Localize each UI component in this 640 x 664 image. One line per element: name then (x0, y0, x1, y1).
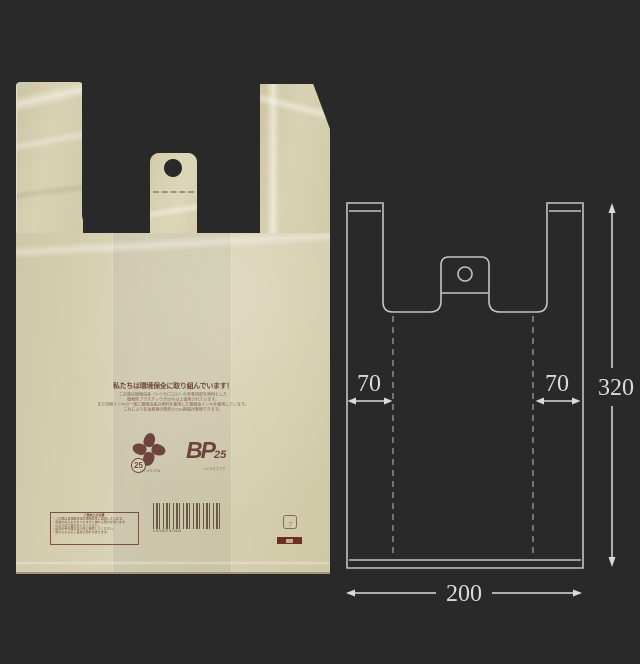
svg-text:70: 70 (545, 371, 569, 397)
dim-width-200: 200 (346, 581, 582, 607)
diagram-hang-hole (458, 267, 472, 281)
bp-mark-icon: BP25 (186, 437, 242, 467)
bag-right-handle (260, 84, 330, 234)
caution-line: ・頭からかぶると窒息の恐れがあります。 (52, 530, 136, 533)
eco-headline: 私たちは環境保全に取り組んでいます！ (53, 381, 293, 391)
bottom-fold-line (16, 562, 330, 564)
bp-caption: バイオマスプラ (190, 467, 238, 471)
eco-line: これにより石油資源の節約とCO₂削減が実現できます。 (73, 407, 273, 412)
bag-left-handle (16, 82, 83, 234)
highlight-streak (16, 126, 83, 153)
highlight-streak (260, 90, 330, 126)
highlight-streak (150, 200, 197, 221)
hang-hole (164, 159, 182, 177)
bag-body: 私たちは環境保全に取り組んでいます！ この袋は植物由来（トウモロコシ）の非食用部… (16, 233, 330, 574)
product-image-canvas: 私たちは環境保全に取り組んでいます！ この袋は植物由来（トウモロコシ）の非食用部… (0, 0, 640, 664)
dim-left-70: 70 (348, 371, 393, 405)
highlight-streak (266, 84, 280, 234)
svg-text:70: 70 (357, 371, 381, 397)
bag-center-tab (150, 153, 197, 234)
dimension-diagram: 70 70 320 200 (340, 170, 640, 650)
eco-description: この袋は植物由来（トウモロコシ）の非食用部を原料とした 植物性プラスチックが25… (73, 392, 273, 412)
biomass-clover-icon: 25 (134, 435, 164, 469)
svg-text:320: 320 (598, 375, 634, 401)
dim-right-70: 70 (536, 371, 581, 405)
size-band-mark (277, 537, 302, 544)
barcode-digits: 4 571372 371414 (131, 529, 203, 533)
plastic-recycle-icon: プラ (283, 515, 297, 529)
svg-text:200: 200 (446, 581, 482, 607)
caution-box: ご使用上の注意 ・この袋は食品衛生法の規格基準に適合しています。 ・突起のあるも… (50, 512, 139, 545)
perforation-line (153, 191, 194, 193)
highlight-streak (16, 82, 83, 114)
bag-handle-cutout (82, 82, 260, 234)
eco-logos: 25 バイオマスPla BP25 バイオマスプラ (126, 433, 246, 485)
dim-height-320: 320 (598, 203, 634, 567)
barcode-bars (153, 503, 222, 529)
biomass-caption: バイオマスPla (126, 469, 174, 473)
crease-shadow (16, 181, 83, 202)
barcode: 4 571372 371414 (153, 503, 222, 536)
